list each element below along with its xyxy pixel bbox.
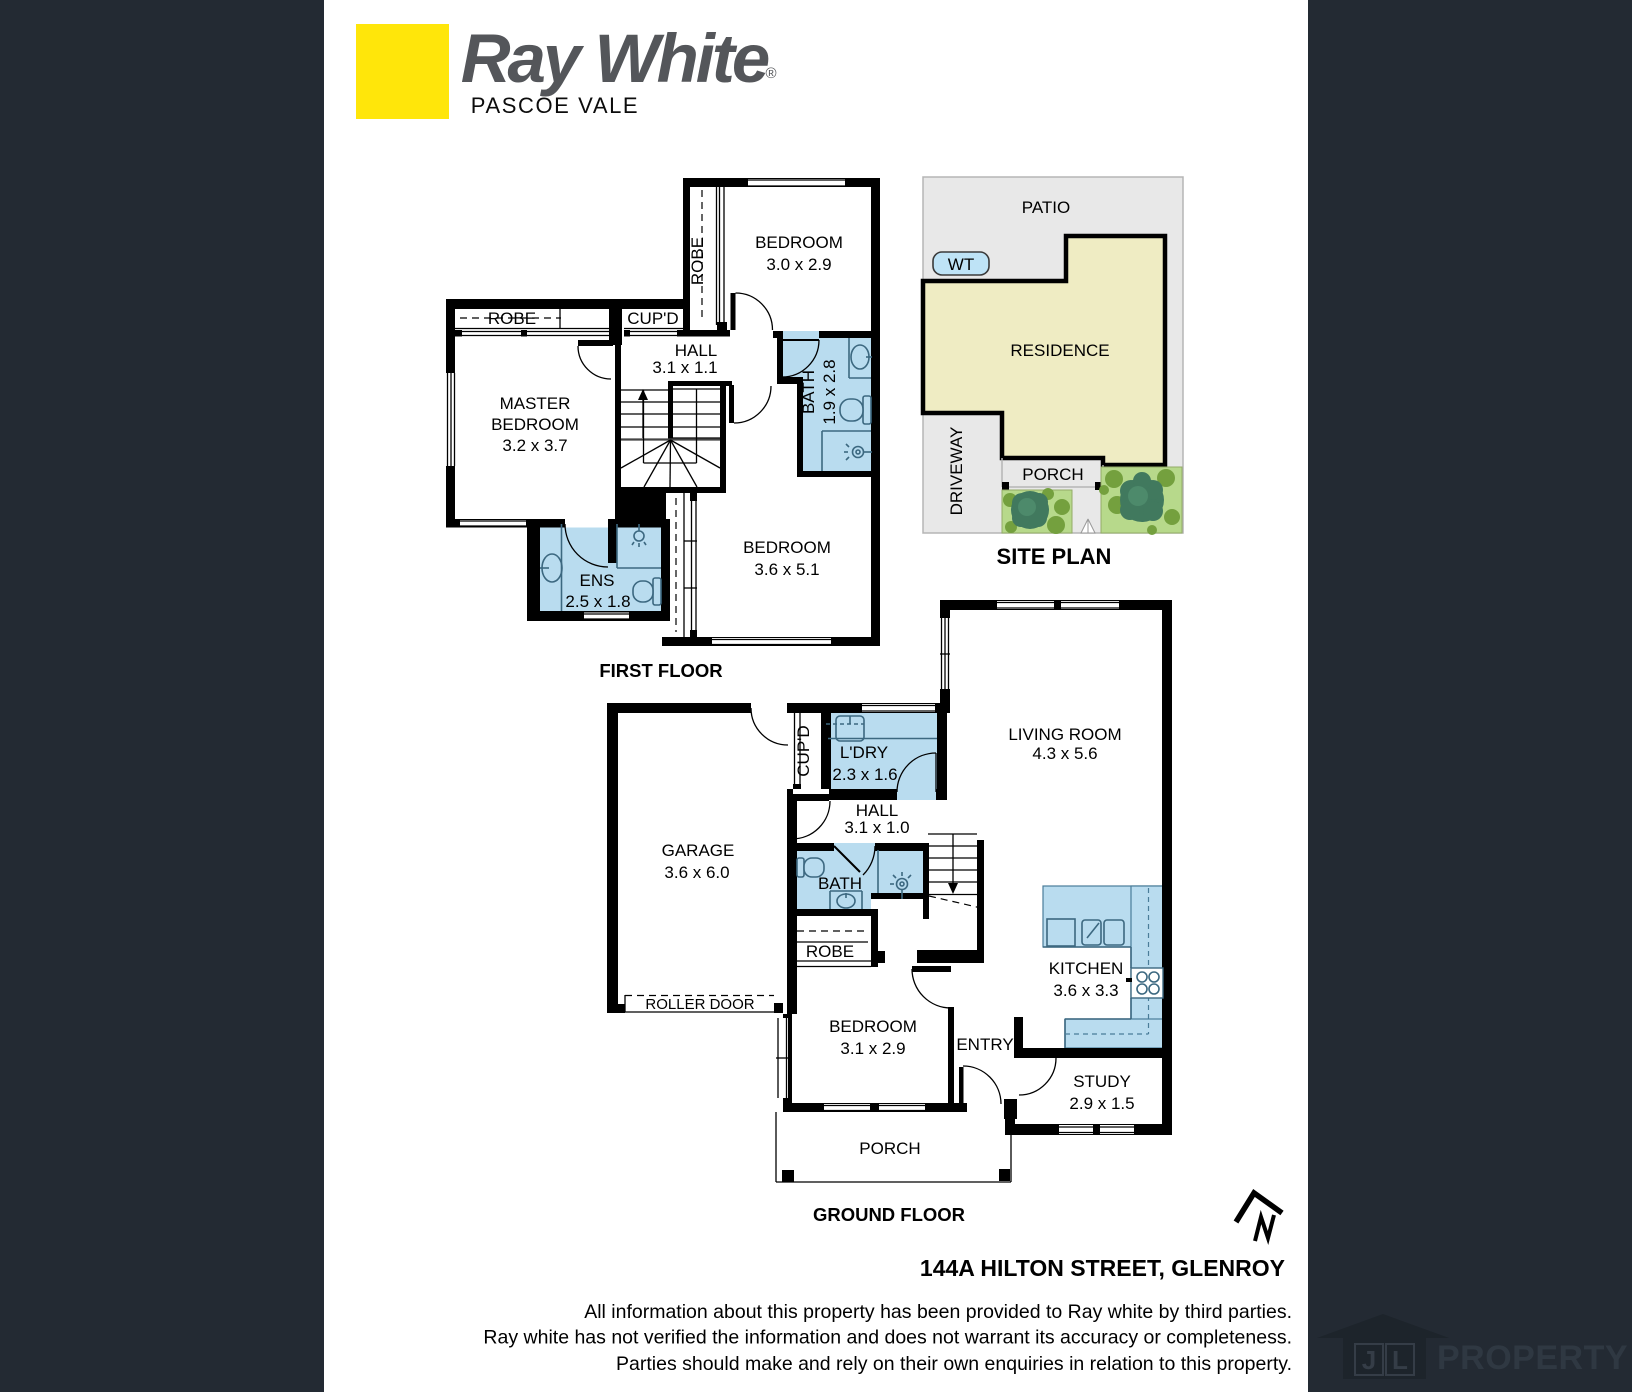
svg-text:PATIO: PATIO bbox=[1022, 198, 1071, 217]
svg-text:SITE PLAN: SITE PLAN bbox=[997, 544, 1112, 569]
svg-text:LIVING ROOM: LIVING ROOM bbox=[1008, 725, 1121, 744]
svg-text:DRIVEWAY: DRIVEWAY bbox=[947, 427, 966, 516]
svg-text:GARAGE: GARAGE bbox=[662, 841, 735, 860]
svg-text:CUP'D: CUP'D bbox=[794, 725, 813, 776]
svg-text:BEDROOM: BEDROOM bbox=[743, 538, 831, 557]
svg-text:2.3 x 1.6: 2.3 x 1.6 bbox=[832, 765, 897, 784]
svg-text:PORCH: PORCH bbox=[1022, 465, 1083, 484]
svg-text:All information about this pro: All information about this property has … bbox=[584, 1301, 1292, 1323]
svg-text:KITCHEN: KITCHEN bbox=[1049, 959, 1124, 978]
svg-text:3.2 x 3.7: 3.2 x 3.7 bbox=[502, 436, 567, 455]
svg-text:PORCH: PORCH bbox=[859, 1139, 920, 1158]
svg-text:L'DRY: L'DRY bbox=[840, 743, 888, 762]
svg-text:ROBE: ROBE bbox=[688, 237, 707, 285]
svg-text:BEDROOM: BEDROOM bbox=[829, 1017, 917, 1036]
svg-text:STUDY: STUDY bbox=[1073, 1072, 1131, 1091]
svg-text:GROUND FLOOR: GROUND FLOOR bbox=[813, 1204, 965, 1225]
svg-text:J: J bbox=[1362, 1345, 1376, 1375]
svg-text:144A HILTON STREET, GLENROY: 144A HILTON STREET, GLENROY bbox=[920, 1255, 1285, 1281]
svg-text:3.0 x 2.9: 3.0 x 2.9 bbox=[766, 255, 831, 274]
svg-text:BATH: BATH bbox=[799, 370, 818, 414]
svg-text:3.1 x 2.9: 3.1 x 2.9 bbox=[840, 1039, 905, 1058]
svg-text:BATH: BATH bbox=[818, 874, 862, 893]
svg-text:PROPERTY: PROPERTY bbox=[1437, 1339, 1628, 1377]
svg-text:2.9 x 1.5: 2.9 x 1.5 bbox=[1069, 1094, 1134, 1113]
svg-text:WT: WT bbox=[948, 255, 974, 274]
svg-text:4.3 x 5.6: 4.3 x 5.6 bbox=[1032, 744, 1097, 763]
svg-text:3.6 x 6.0: 3.6 x 6.0 bbox=[664, 863, 729, 882]
svg-text:BEDROOM: BEDROOM bbox=[755, 233, 843, 252]
svg-text:2.5 x 1.8: 2.5 x 1.8 bbox=[565, 592, 630, 611]
svg-text:Ray White: Ray White bbox=[461, 20, 769, 97]
svg-text:BEDROOM: BEDROOM bbox=[491, 415, 579, 434]
svg-text:3.1 x 1.0: 3.1 x 1.0 bbox=[844, 818, 909, 837]
svg-text:FIRST FLOOR: FIRST FLOOR bbox=[599, 660, 722, 681]
svg-text:L: L bbox=[1392, 1345, 1408, 1375]
svg-text:3.6 x 5.1: 3.6 x 5.1 bbox=[754, 560, 819, 579]
svg-text:ENTRY: ENTRY bbox=[956, 1035, 1013, 1054]
svg-text:ROBE: ROBE bbox=[488, 309, 536, 328]
svg-text:ROLLER DOOR: ROLLER DOOR bbox=[645, 996, 754, 1013]
svg-text:ENS: ENS bbox=[580, 571, 615, 590]
svg-text:ROBE: ROBE bbox=[806, 942, 854, 961]
svg-text:RESIDENCE: RESIDENCE bbox=[1010, 341, 1109, 360]
svg-text:MASTER: MASTER bbox=[500, 394, 571, 413]
svg-text:PASCOE VALE: PASCOE VALE bbox=[471, 93, 639, 118]
svg-text:®: ® bbox=[765, 65, 776, 82]
svg-text:Parties should make and rely o: Parties should make and rely on their ow… bbox=[616, 1353, 1292, 1375]
svg-text:Ray white has not verified the: Ray white has not verified the informati… bbox=[483, 1327, 1292, 1349]
svg-text:1.9 x 2.8: 1.9 x 2.8 bbox=[820, 359, 839, 424]
svg-text:3.1 x 1.1: 3.1 x 1.1 bbox=[652, 358, 717, 377]
svg-text:CUP'D: CUP'D bbox=[627, 309, 678, 328]
svg-text:3.6 x 3.3: 3.6 x 3.3 bbox=[1053, 981, 1118, 1000]
